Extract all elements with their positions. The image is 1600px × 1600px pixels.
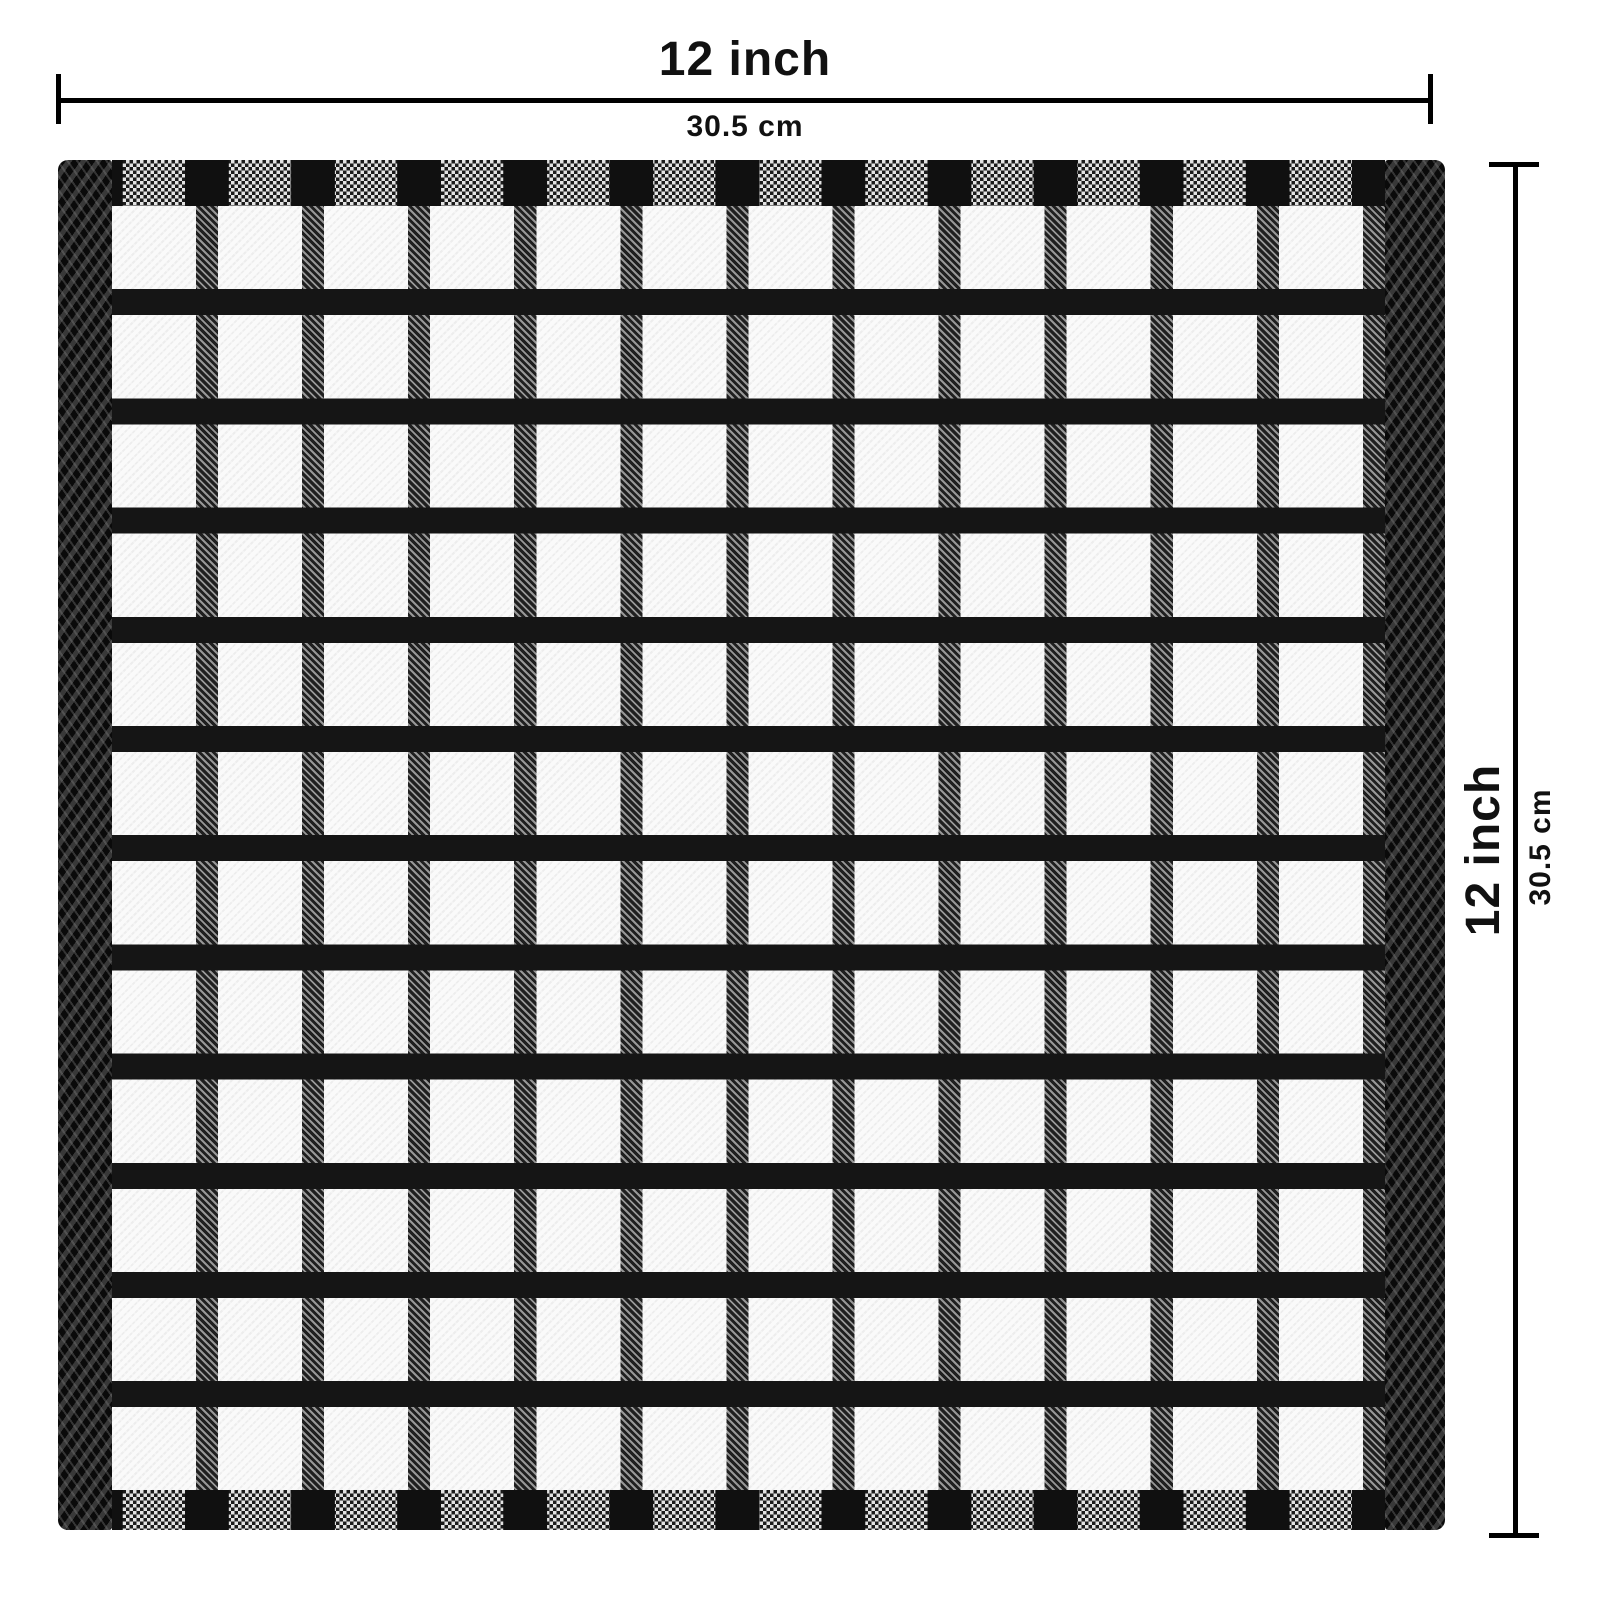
height-label-cm: 30.5 cm (1525, 767, 1557, 927)
product-dimension-diagram: 12 inch 30.5 cm 12 inch 30.5 cm (0, 0, 1600, 1600)
towel-left-herringbone-border (58, 160, 112, 1530)
width-label-cm: 30.5 cm (58, 110, 1432, 144)
height-dimension-tick-bottom (1489, 1533, 1539, 1538)
width-dimension-line (58, 98, 1432, 103)
towel-bottom-border (112, 1490, 1385, 1530)
width-label-inches: 12 inch (58, 32, 1432, 87)
height-dimension-tick-top (1489, 162, 1539, 167)
towel-right-herringbone-border (1385, 160, 1445, 1530)
towel-top-border (112, 160, 1385, 206)
height-dimension-line (1513, 164, 1518, 1538)
height-label-inches: 12 inch (1461, 700, 1507, 1000)
towel-image (58, 160, 1445, 1530)
towel-check-pattern (112, 206, 1385, 1490)
